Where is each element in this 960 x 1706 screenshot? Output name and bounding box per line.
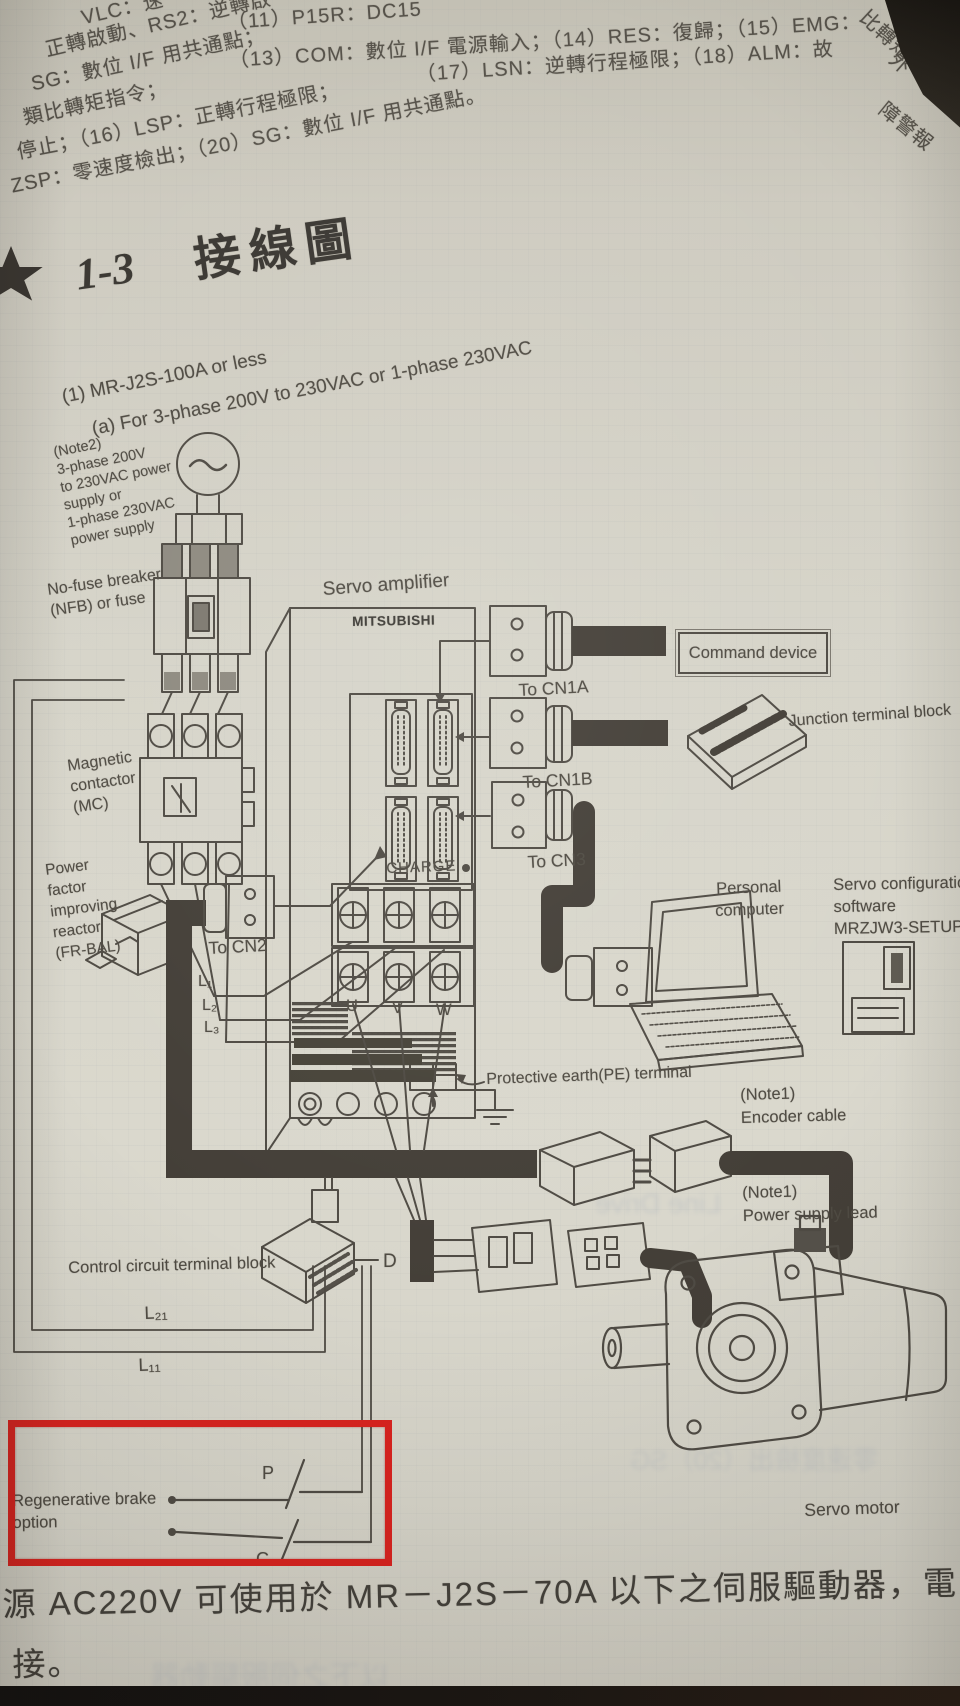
- command-device-label: Command device: [689, 643, 817, 664]
- to-cn1b-label: To CN1B: [522, 768, 593, 794]
- software-label-line: Servo configuration: [833, 872, 960, 896]
- mc-label: Magnetic contactor (MC): [66, 747, 140, 819]
- command-device-box: Command device: [678, 632, 828, 674]
- encoder-cable-bar: [166, 1150, 537, 1178]
- power-lead-label-line: Power supply lead: [743, 1201, 878, 1228]
- software-label-line: MRZJW3-SETUP: [834, 916, 960, 940]
- floppy-disk-drawing: [843, 942, 914, 1034]
- software-label: Servo configuration software MRZJW3-SETU…: [833, 872, 960, 940]
- servo-motor-label: Servo motor: [804, 1497, 900, 1522]
- earth-ground-icon: [477, 1110, 513, 1124]
- terminal-l1-label: L₁: [198, 972, 212, 992]
- manual-page-photo: VLC：速 正轉啟動、RS2：逆轉啟 （11）P15R：DC15 SG：數位 I…: [0, 0, 960, 1706]
- ghost-text: Line Drive: [595, 1188, 721, 1220]
- charge-led-dot: [462, 864, 470, 872]
- terminal-l11-label: L₁₁: [138, 1353, 161, 1376]
- dsub-connector: [428, 700, 458, 786]
- pc-label-line: Personal: [714, 876, 784, 900]
- encoder-cable-label: (Note1) Encoder cable: [740, 1081, 847, 1130]
- magnetic-contactor-drawing: [140, 714, 254, 1042]
- control-terminal-block-drawing: [262, 1178, 378, 1303]
- cn1b-connector-drawing: [455, 698, 668, 768]
- pc-label-line: computer: [715, 898, 785, 922]
- software-label-line: software: [833, 894, 960, 918]
- body-text-line2: 接。: [12, 1642, 83, 1685]
- personal-computer-label: Personal computer: [714, 876, 784, 922]
- terminal-l2-label: L₂: [202, 996, 217, 1016]
- power-lead-label: (Note1) Power supply lead: [742, 1178, 878, 1228]
- encoder-label-line: Encoder cable: [741, 1104, 847, 1130]
- nfb-breaker-drawing: [154, 544, 250, 714]
- ac-source-drawing: [176, 433, 242, 544]
- terminal-w-label: W: [436, 1000, 452, 1021]
- reactor-label: Power factor improving reactor (FR-BAL): [44, 852, 123, 964]
- terminal-u-label: U: [346, 996, 358, 1017]
- dsub-connector: [386, 700, 416, 786]
- photo-edge-strip: [0, 1686, 960, 1706]
- ghost-text: 零速度檢出（20）SG: [630, 1440, 879, 1477]
- terminal-l21-label: L₂₁: [144, 1301, 168, 1324]
- highlight-rectangle: [8, 1420, 392, 1566]
- to-cn1a-label: To CN1A: [518, 676, 589, 702]
- encoder-label-line: (Note1): [740, 1081, 846, 1107]
- terminal-l3-label: L₃: [204, 1018, 219, 1038]
- mitsubishi-logo: MITSUBISHI: [352, 613, 435, 631]
- cn3-connector-drawing: [455, 782, 652, 1006]
- terminal-v-label: V: [392, 998, 403, 1019]
- to-cn3-label: To CN3: [527, 849, 586, 874]
- terminal-d-label: D: [383, 1250, 397, 1274]
- charge-label: CHARGE: [386, 858, 457, 879]
- to-cn2-label: To CN2: [208, 935, 267, 960]
- junction-terminal-block-drawing: [688, 695, 806, 789]
